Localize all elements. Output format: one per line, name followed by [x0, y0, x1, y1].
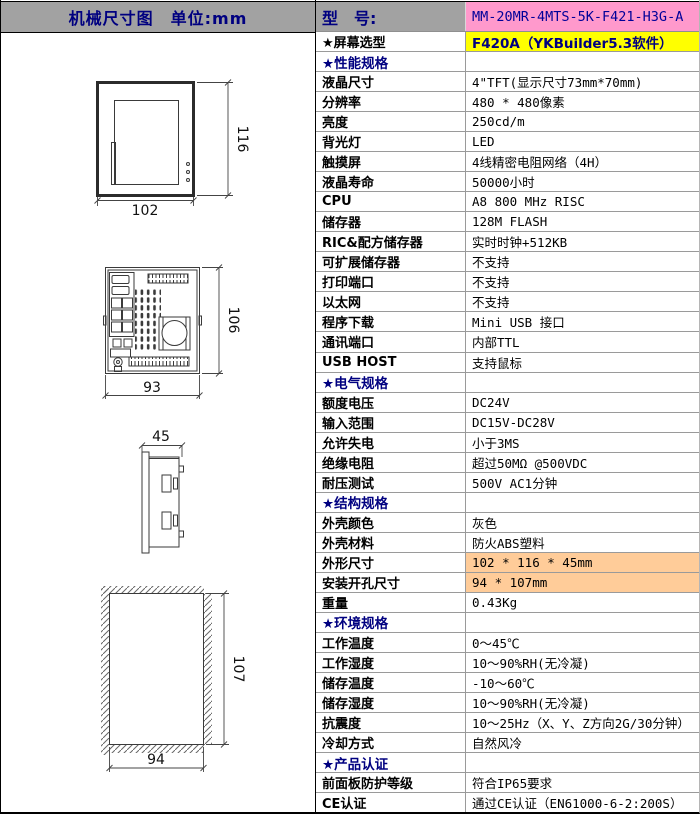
table-row: ★环境规格 — [316, 613, 699, 633]
spec-label: 外形尺寸 — [316, 553, 466, 572]
spec-value: 支持鼠标 — [466, 353, 699, 372]
table-row: 液晶尺寸 4"TFT(显示尺寸73mm*70mm) — [316, 72, 699, 92]
model-number-value: MM-20MR-4MTS-5K-F421-H3G-A — [466, 2, 699, 31]
spec-value: 符合IP65要求 — [466, 773, 699, 792]
table-row: 外壳颜色 灰色 — [316, 513, 699, 533]
table-row: ★产品认证 — [316, 753, 699, 773]
spec-value: 自然风冷 — [466, 733, 699, 752]
spec-label: CE认证 — [316, 793, 466, 812]
spec-label: 储存湿度 — [316, 693, 466, 712]
table-row: 液晶寿命 50000小时 — [316, 172, 699, 192]
table-row: 输入范围 DC15V-DC28V — [316, 413, 699, 433]
table-row: 打印端口 不支持 — [316, 272, 699, 292]
table-row: 亮度 250cd/m — [316, 112, 699, 132]
spec-value: 94 * 107mm — [466, 573, 699, 592]
spec-label: 抗震度 — [316, 713, 466, 732]
spec-value: Mini USB 接口 — [466, 312, 699, 331]
table-row: 储存湿度 10～90%RH(无冷凝) — [316, 693, 699, 713]
spec-value — [466, 753, 699, 772]
spec-label: 重量 — [316, 593, 466, 612]
diagram-panel-title: 机械尺寸图 单位:mm — [1, 1, 315, 33]
spec-value: 通过CE认证（EN61000-6-2:200S） — [466, 793, 699, 812]
spec-label: 储存温度 — [316, 673, 466, 692]
spec-label: 液晶寿命 — [316, 172, 466, 191]
spec-label: CPU — [316, 192, 466, 211]
spec-value: 10～90%RH(无冷凝) — [466, 693, 699, 712]
spec-value: 102 * 116 * 45mm — [466, 553, 699, 572]
spec-value: A8 800 MHz RISC — [466, 192, 699, 211]
cutout-width-dim: 94 — [147, 752, 165, 768]
spec-label: 冷却方式 — [316, 733, 466, 752]
spec-label: 外壳材料 — [316, 533, 466, 552]
spec-value: 480 * 480像素 — [466, 92, 699, 111]
front-width-dim: 102 — [132, 203, 159, 219]
spec-rows: ★屏幕选型 F420A（YKBuilder5.3软件） ★性能规格 液晶尺寸 4… — [316, 32, 699, 812]
spec-value: DC24V — [466, 393, 699, 412]
spec-value: 灰色 — [466, 513, 699, 532]
model-number-label: 型 号: — [316, 2, 466, 31]
table-row: CE认证 通过CE认证（EN61000-6-2:200S） — [316, 793, 699, 812]
rear-height-dim: 106 — [225, 307, 241, 334]
spec-label: ★性能规格 — [316, 52, 466, 71]
mechanical-diagrams: 116 102 — [1, 33, 316, 812]
table-row: ★电气规格 — [316, 373, 699, 393]
table-row: 重量 0.43Kg — [316, 593, 699, 613]
spec-label: 分辨率 — [316, 92, 466, 111]
spec-label: 触摸屏 — [316, 152, 466, 171]
panel-cutout-diagram: 107 94 — [101, 586, 246, 772]
spec-value: 不支持 — [466, 252, 699, 271]
table-row: 储存温度 -10～60℃ — [316, 673, 699, 693]
spec-value: 不支持 — [466, 292, 699, 311]
cutout-height-dim: 107 — [230, 656, 246, 683]
table-row: 储存器 128M FLASH — [316, 212, 699, 232]
spec-label: ★屏幕选型 — [316, 32, 466, 51]
spec-value: 防火ABS塑料 — [466, 533, 699, 552]
spec-value: 小于3MS — [466, 433, 699, 452]
spec-table: 型 号: MM-20MR-4MTS-5K-F421-H3G-A ★屏幕选型 F4… — [316, 0, 700, 814]
spec-value: 50000小时 — [466, 172, 699, 191]
spec-sheet-page: 机械尺寸图 单位:mm — [0, 0, 700, 814]
table-row: 安装开孔尺寸 94 * 107mm — [316, 573, 699, 593]
table-row: 程序下载 Mini USB 接口 — [316, 312, 699, 332]
spec-value: 0～45℃ — [466, 633, 699, 652]
spec-label: ★产品认证 — [316, 753, 466, 772]
table-row: 外形尺寸 102 * 116 * 45mm — [316, 553, 699, 573]
spec-value: F420A（YKBuilder5.3软件） — [466, 32, 699, 51]
table-row: 耐压测试 500V AC1分钟 — [316, 473, 699, 493]
spec-label: 前面板防护等级 — [316, 773, 466, 792]
side-view-diagram: 45 — [139, 429, 185, 553]
spec-label: RIC&配方储存器 — [316, 232, 466, 251]
side-depth-dim: 45 — [152, 429, 170, 445]
table-row: 分辨率 480 * 480像素 — [316, 92, 699, 112]
spec-value: -10～60℃ — [466, 673, 699, 692]
spec-label: 额度电压 — [316, 393, 466, 412]
mechanical-diagram-panel: 机械尺寸图 单位:mm — [0, 0, 316, 814]
spec-value: 4"TFT(显示尺寸73mm*70mm) — [466, 72, 699, 91]
table-row: ★结构规格 — [316, 493, 699, 513]
spec-label: 液晶尺寸 — [316, 72, 466, 91]
table-row: 冷却方式 自然风冷 — [316, 733, 699, 753]
table-row: 通讯端口 内部TTL — [316, 332, 699, 352]
spec-label: 背光灯 — [316, 132, 466, 151]
spec-value — [466, 52, 699, 71]
spec-label: 输入范围 — [316, 413, 466, 432]
spec-label: 允许失电 — [316, 433, 466, 452]
table-row: 触摸屏 4线精密电阻网络（4H） — [316, 152, 699, 172]
spec-label: ★环境规格 — [316, 613, 466, 632]
spec-label: 工作温度 — [316, 633, 466, 652]
spec-label: 程序下载 — [316, 312, 466, 331]
spec-value — [466, 493, 699, 512]
spec-value: 0.43Kg — [466, 593, 699, 612]
spec-label: 绝缘电阻 — [316, 453, 466, 472]
spec-label: 安装开孔尺寸 — [316, 573, 466, 592]
table-row: 以太网 不支持 — [316, 292, 699, 312]
spec-value: 500V AC1分钟 — [466, 473, 699, 492]
spec-label: 耐压测试 — [316, 473, 466, 492]
table-row: USB HOST 支持鼠标 — [316, 353, 699, 373]
rear-view-diagram: 106 93 — [103, 265, 242, 400]
spec-label: 以太网 — [316, 292, 466, 311]
spec-label: ★电气规格 — [316, 373, 466, 392]
table-row: 可扩展储存器 不支持 — [316, 252, 699, 272]
spec-label: 可扩展储存器 — [316, 252, 466, 271]
rear-width-dim: 93 — [143, 380, 161, 396]
spec-value — [466, 613, 699, 632]
table-row: ★性能规格 — [316, 52, 699, 72]
spec-value: 超过50MΩ @500VDC — [466, 453, 699, 472]
spec-value: 10～25Hz（X、Y、Z方向2G/30分钟） — [466, 713, 699, 732]
spec-value — [466, 373, 699, 392]
spec-label: 外壳颜色 — [316, 513, 466, 532]
table-row: ★屏幕选型 F420A（YKBuilder5.3软件） — [316, 32, 699, 52]
table-row: 背光灯 LED — [316, 132, 699, 152]
table-row: 绝缘电阻 超过50MΩ @500VDC — [316, 453, 699, 473]
spec-value: 4线精密电阻网络（4H） — [466, 152, 699, 171]
front-height-dim: 116 — [234, 126, 250, 153]
spec-label: 储存器 — [316, 212, 466, 231]
spec-value: 实时时钟+512KB — [466, 232, 699, 251]
spec-label: ★结构规格 — [316, 493, 466, 512]
table-row: 外壳材料 防火ABS塑料 — [316, 533, 699, 553]
table-row: 额度电压 DC24V — [316, 393, 699, 413]
spec-label: 工作湿度 — [316, 653, 466, 672]
spec-value: DC15V-DC28V — [466, 413, 699, 432]
spec-label: 打印端口 — [316, 272, 466, 291]
table-row: CPU A8 800 MHz RISC — [316, 192, 699, 212]
spec-value: 内部TTL — [466, 332, 699, 351]
table-row: RIC&配方储存器 实时时钟+512KB — [316, 232, 699, 252]
spec-value: 250cd/m — [466, 112, 699, 131]
spec-value: LED — [466, 132, 699, 151]
table-row: 工作湿度 10～90%RH(无冷凝) — [316, 653, 699, 673]
spec-label: 亮度 — [316, 112, 466, 131]
table-row: 工作温度 0～45℃ — [316, 633, 699, 653]
spec-label: 通讯端口 — [316, 332, 466, 351]
table-row: 前面板防护等级 符合IP65要求 — [316, 773, 699, 793]
table-row: 抗震度 10～25Hz（X、Y、Z方向2G/30分钟） — [316, 713, 699, 733]
model-row: 型 号: MM-20MR-4MTS-5K-F421-H3G-A — [316, 1, 699, 32]
spec-value: 10～90%RH(无冷凝) — [466, 653, 699, 672]
table-row: 允许失电 小于3MS — [316, 433, 699, 453]
spec-label: USB HOST — [316, 353, 466, 372]
spec-value: 128M FLASH — [466, 212, 699, 231]
spec-value: 不支持 — [466, 272, 699, 291]
front-view-diagram: 116 102 — [95, 80, 251, 220]
